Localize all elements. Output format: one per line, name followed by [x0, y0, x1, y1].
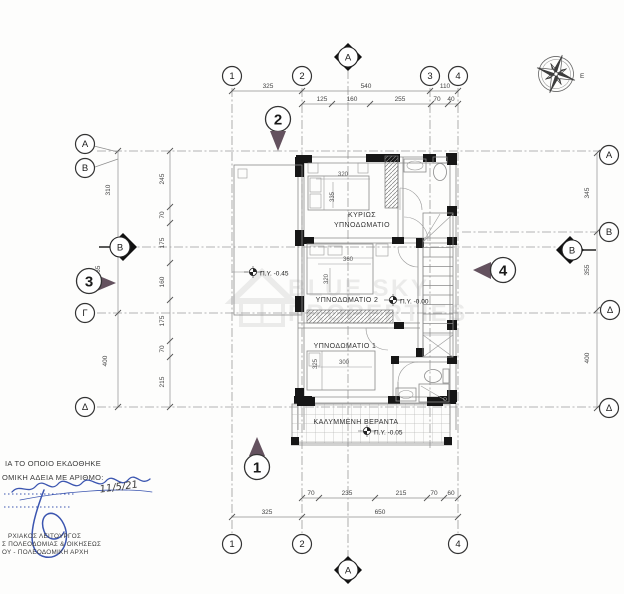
grid-bottom-2: 2	[299, 539, 304, 550]
dim-left-245: 245	[159, 173, 166, 184]
label-main-bedroom-2: ΥΠΝΟΔΩΜΑΤΙΟ	[334, 222, 390, 229]
grid-bottom-1: 1	[229, 539, 234, 550]
view-marker-4: 4	[473, 258, 516, 283]
stamp-line4: Σ ΠΟΛΕΟΔΟΜΙΑΣ & ΟΙΚΗΣΕΩΣ	[2, 541, 101, 548]
section-marker-b-left: B	[99, 233, 137, 261]
stamp-line1: ΙΑ ΤΟ ΟΠΟΙΟ ΕΚΔΟΘΗΚΕ	[5, 459, 101, 468]
dim-bot-325: 325	[262, 509, 273, 516]
dim-left-70a: 70	[159, 211, 166, 219]
section-a-top-label: A	[345, 53, 352, 64]
label-main-bedroom-1: ΚΥΡΙΩΣ	[348, 212, 376, 219]
level-floor: Π.Υ. -0.00	[400, 299, 429, 306]
furniture-dims: 320 335 360 320 325 300	[313, 172, 354, 369]
scanned-floor-plan-page: BLUE SKY PROPERTIES	[0, 0, 624, 594]
dim-left-175b: 175	[159, 315, 166, 326]
dim-top-sub-125: 125	[317, 96, 328, 103]
stamp-line5: ΟΥ - ΠΟΛΕΟΔΟΜΙΚΗ ΑΡΧΗ	[2, 549, 89, 556]
dim-top-110: 110	[440, 83, 451, 90]
grid-top-4: 4	[455, 71, 460, 82]
dim-left-160: 160	[159, 276, 166, 287]
dim-right-355: 355	[584, 264, 591, 275]
floor-plan-drawing: BLUE SKY PROPERTIES	[0, 0, 624, 594]
view-marker-2: 2	[266, 107, 291, 152]
grid-right-b: B	[606, 227, 612, 238]
label-veranda: ΚΑΛΥΜΜΕΝΗ ΒΕΡΑΝΤΑ	[314, 419, 399, 426]
grid-top-3: 3	[427, 71, 432, 82]
label-bedroom1: ΥΠΝΟΔΩΜΑΤΙΟ 1	[314, 343, 377, 350]
dim-top-sub-70: 70	[433, 96, 441, 103]
dim-bed1-w: 300	[339, 360, 350, 366]
label-bedroom2: ΥΠΝΟΔΩΜΑΤΙΟ 2	[316, 297, 379, 304]
dim-top-325: 325	[263, 83, 274, 90]
view-4-label: 4	[499, 263, 508, 280]
grid-bottom-4: 4	[455, 539, 460, 550]
dim-left-310: 310	[105, 184, 112, 195]
grid-top-1: 1	[229, 71, 234, 82]
stamp-line3: ΡΧΙΑΚΟΣ ΛΕΙΤΟΥΡΓΟΣ	[8, 533, 81, 540]
section-a-bottom-label: A	[345, 566, 352, 577]
dim-left-175a: 175	[159, 237, 166, 248]
dim-bot-sub-70a: 70	[307, 490, 315, 497]
dim-left-70b: 70	[159, 345, 166, 353]
dim-bed2-h: 320	[324, 273, 330, 284]
grid-right-d2: Δ	[606, 403, 613, 414]
dim-bot-sub-70b: 70	[430, 490, 438, 497]
dim-bed-main-w: 320	[338, 172, 349, 178]
section-marker-a-bottom: A	[334, 556, 362, 584]
dim-right-400: 400	[584, 352, 591, 363]
dim-top-sub-160: 160	[347, 96, 358, 103]
view-1-label: 1	[253, 460, 261, 477]
section-b-left-label: B	[117, 243, 123, 254]
dim-top-sub-40: 40	[447, 96, 455, 103]
view-2-label: 2	[274, 112, 282, 129]
dim-left-215: 215	[159, 376, 166, 387]
dim-bed2-w: 360	[343, 257, 354, 263]
permit-stamp: ΙΑ ΤΟ ΟΠΟΙΟ ΕΚΔΟΘΗΚΕ ΟΜΙΚΗ ΑΔΕΙΑ ΜΕ ΑΡΙΘ…	[2, 459, 152, 557]
section-marker-a-top: A	[334, 43, 362, 71]
dim-bot-sub-60: 60	[447, 490, 455, 497]
compass-rose: Ε	[531, 49, 585, 99]
section-marker-b-right: B	[556, 236, 596, 264]
dim-top-540: 540	[361, 83, 372, 90]
dim-bot-sub-215: 215	[396, 490, 407, 497]
level-veranda: Π.Υ. -0.05	[374, 430, 403, 437]
dim-top-sub-255: 255	[395, 96, 406, 103]
dim-bot-sub-235: 235	[342, 490, 353, 497]
dim-bot-650: 650	[375, 509, 386, 516]
view-marker-3: 3	[77, 269, 117, 294]
grid-left-b: B	[82, 163, 88, 174]
dim-bed1-h: 325	[313, 358, 319, 369]
section-b-right-label: B	[569, 246, 575, 257]
grid-right-a: A	[606, 150, 613, 161]
grid-left-d: Δ	[82, 402, 89, 413]
grid-right-d1: Δ	[607, 305, 614, 316]
grid-left-a: A	[82, 139, 89, 150]
dim-right-345: 345	[584, 187, 591, 198]
dim-left-400: 400	[102, 355, 109, 366]
view-3-label: 3	[85, 274, 93, 291]
level-terrace: Π.Υ. -0.45	[260, 271, 289, 278]
dim-bed-main-h: 335	[330, 191, 336, 202]
compass-east-label: Ε	[580, 73, 585, 80]
grid-top-2: 2	[299, 71, 304, 82]
grid-left-g: Γ	[82, 308, 87, 319]
view-marker-1: 1	[245, 437, 270, 480]
